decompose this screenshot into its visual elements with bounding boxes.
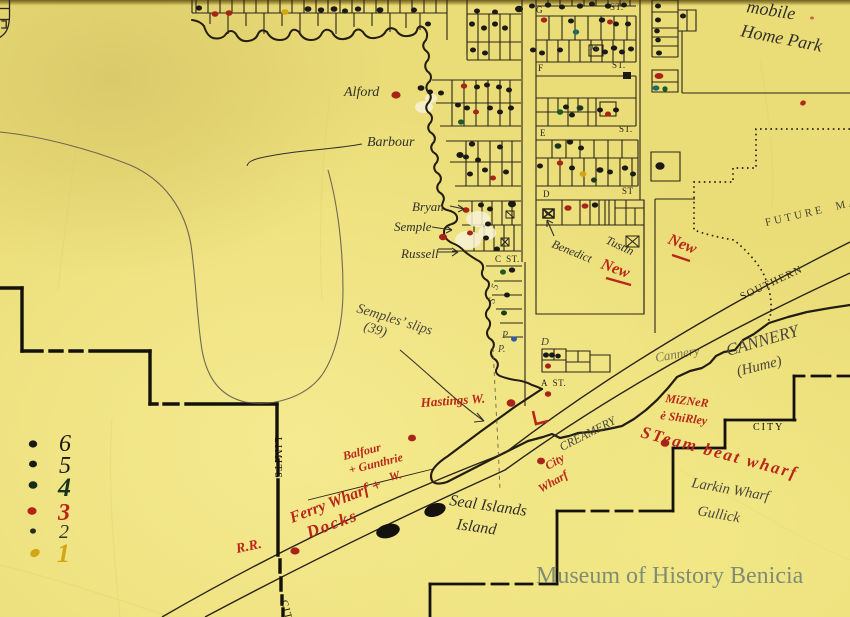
svg-text:CITY: CITY bbox=[753, 422, 784, 433]
svg-text:Bryan: Bryan bbox=[412, 199, 444, 214]
svg-text:4: 4 bbox=[57, 473, 71, 502]
svg-text:P.: P. bbox=[497, 344, 505, 355]
svg-text:LIMITS: LIMITS bbox=[272, 437, 283, 479]
svg-text:ST.: ST. bbox=[619, 124, 633, 134]
svg-text:D: D bbox=[540, 336, 549, 348]
svg-text:G: G bbox=[536, 5, 543, 15]
svg-text:Alford: Alford bbox=[343, 85, 380, 100]
svg-text:Barbour: Barbour bbox=[367, 135, 415, 150]
svg-text:Semple: Semple bbox=[394, 219, 432, 234]
svg-text:1: 1 bbox=[57, 539, 70, 568]
svg-text:ST: ST bbox=[622, 186, 634, 196]
svg-text:P: P bbox=[501, 330, 508, 341]
svg-text:D b.: D b. bbox=[587, 44, 600, 52]
svg-text:Museum of History Benicia: Museum of History Benicia bbox=[536, 563, 804, 589]
svg-text:E: E bbox=[540, 128, 546, 138]
svg-text:D: D bbox=[543, 189, 550, 199]
svg-text:C ST.: C ST. bbox=[495, 254, 520, 264]
svg-text:ST.: ST. bbox=[612, 60, 626, 70]
svg-text:A ST.: A ST. bbox=[541, 378, 566, 388]
svg-text:ST.: ST. bbox=[610, 2, 624, 12]
svg-text:Russell: Russell bbox=[400, 246, 439, 261]
svg-text:F: F bbox=[538, 63, 544, 73]
